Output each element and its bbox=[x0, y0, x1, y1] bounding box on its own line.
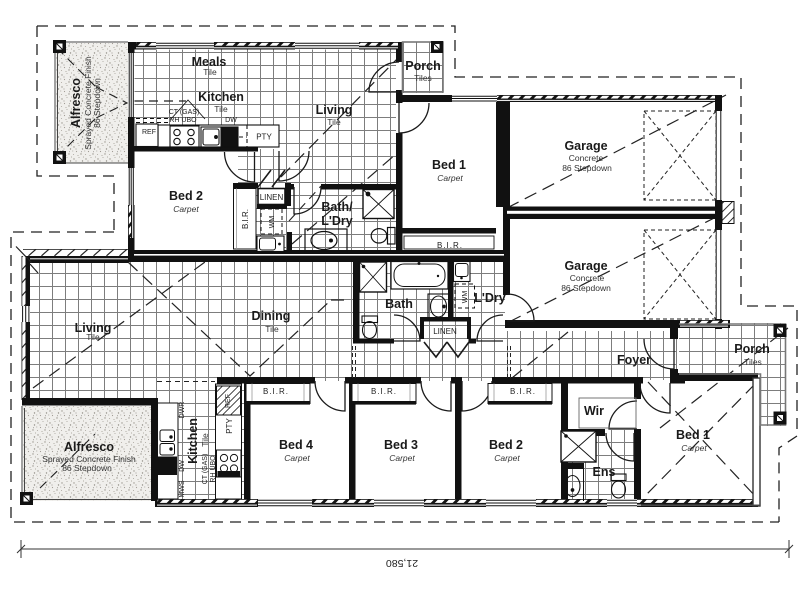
svg-text:Alfresco: Alfresco bbox=[64, 440, 114, 454]
svg-text:Tile: Tile bbox=[265, 324, 279, 334]
svg-text:CT (GAS): CT (GAS) bbox=[202, 454, 209, 485]
svg-text:PTY: PTY bbox=[225, 418, 234, 434]
svg-text:Bath/: Bath/ bbox=[321, 200, 353, 214]
svg-text:WM: WM bbox=[269, 216, 276, 229]
svg-text:DW: DW bbox=[225, 117, 237, 124]
svg-text:L'Dry: L'Dry bbox=[321, 214, 352, 228]
svg-text:Kitchen: Kitchen bbox=[186, 418, 200, 464]
svg-text:LINEN: LINEN bbox=[260, 193, 284, 202]
svg-text:Carpet: Carpet bbox=[681, 443, 707, 453]
svg-text:Carpet: Carpet bbox=[494, 453, 520, 463]
svg-text:REF: REF bbox=[142, 129, 156, 136]
svg-text:Bed 1: Bed 1 bbox=[676, 428, 710, 442]
svg-text:Tiles: Tiles bbox=[744, 357, 762, 367]
svg-text:B.I.R.: B.I.R. bbox=[437, 241, 463, 250]
svg-text:Bed 4: Bed 4 bbox=[279, 438, 313, 452]
svg-text:Garage: Garage bbox=[564, 259, 607, 273]
svg-text:Foyer: Foyer bbox=[617, 353, 651, 367]
svg-text:Carpet: Carpet bbox=[173, 204, 199, 214]
svg-text:B.I.R.: B.I.R. bbox=[241, 209, 250, 229]
svg-text:Porch: Porch bbox=[405, 59, 440, 73]
svg-text:Wir: Wir bbox=[584, 404, 604, 418]
svg-text:Alfresco: Alfresco bbox=[69, 78, 83, 128]
svg-text:WM: WM bbox=[462, 291, 469, 304]
svg-text:Bed 2: Bed 2 bbox=[169, 189, 203, 203]
svg-text:Carpet: Carpet bbox=[389, 453, 415, 463]
svg-text:Bath: Bath bbox=[385, 297, 413, 311]
svg-text:Garage: Garage bbox=[564, 139, 607, 153]
svg-text:LINEN: LINEN bbox=[433, 327, 457, 336]
svg-text:Tile: Tile bbox=[214, 104, 228, 114]
svg-text:B.I.R.: B.I.R. bbox=[371, 387, 397, 396]
svg-text:Tile: Tile bbox=[203, 67, 217, 77]
svg-text:Concrete: Concrete bbox=[569, 153, 604, 163]
svg-text:86 Stepdown: 86 Stepdown bbox=[561, 283, 611, 293]
svg-text:Tile: Tile bbox=[200, 433, 210, 447]
svg-text:Kitchen: Kitchen bbox=[198, 90, 244, 104]
svg-text:MWS: MWS bbox=[179, 480, 186, 497]
svg-text:L'Dry: L'Dry bbox=[474, 291, 505, 305]
svg-text:86 Stepdown: 86 Stepdown bbox=[562, 163, 612, 173]
svg-text:Tile: Tile bbox=[327, 117, 341, 127]
svg-text:B.I.R.: B.I.R. bbox=[263, 387, 289, 396]
svg-text:DWR: DWR bbox=[179, 402, 186, 419]
svg-text:PTY: PTY bbox=[256, 133, 272, 142]
svg-text:Carpet: Carpet bbox=[437, 173, 463, 183]
svg-text:Concrete: Concrete bbox=[570, 273, 605, 283]
svg-text:86 Stepdown: 86 Stepdown bbox=[62, 463, 112, 473]
svg-text:Bed 3: Bed 3 bbox=[384, 438, 418, 452]
svg-text:86 Stepdown: 86 Stepdown bbox=[92, 78, 102, 128]
svg-text:Dining: Dining bbox=[252, 309, 291, 323]
svg-text:Living: Living bbox=[316, 103, 353, 117]
svg-text:RH UBO: RH UBO bbox=[169, 117, 197, 124]
svg-text:21,580: 21,580 bbox=[386, 557, 418, 569]
svg-text:Tiles: Tiles bbox=[414, 73, 432, 83]
svg-text:REF: REF bbox=[225, 394, 232, 408]
svg-text:B.I.R.: B.I.R. bbox=[510, 387, 536, 396]
svg-text:Tile: Tile bbox=[86, 332, 100, 342]
svg-text:Porch: Porch bbox=[734, 342, 769, 356]
svg-text:CT (GAS): CT (GAS) bbox=[169, 109, 200, 116]
svg-text:Carpet: Carpet bbox=[284, 453, 310, 463]
svg-text:DW: DW bbox=[179, 460, 186, 472]
svg-text:RH UBO: RH UBO bbox=[210, 455, 217, 483]
svg-text:Ens: Ens bbox=[593, 465, 616, 479]
svg-text:Bed 2: Bed 2 bbox=[489, 438, 523, 452]
svg-text:Bed 1: Bed 1 bbox=[432, 158, 466, 172]
